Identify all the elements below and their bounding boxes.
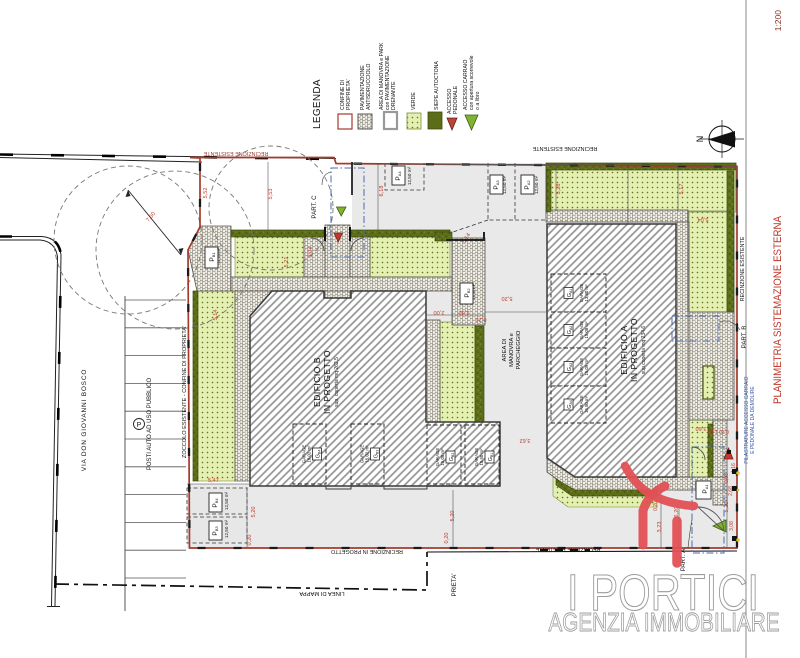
svg-text:5,52: 5,52 [203, 188, 209, 199]
svg-text:12,50 m²: 12,50 m² [407, 166, 412, 185]
svg-text:N: N [695, 136, 705, 143]
svg-text:16,02 m²: 16,02 m² [307, 445, 312, 463]
svg-text:0,20: 0,20 [444, 533, 450, 544]
svg-text:POSTI AUTO AD USO PUBBLICO: POSTI AUTO AD USO PUBBLICO [147, 378, 153, 471]
svg-text:PA4: PA4 [395, 171, 402, 181]
svg-text:RECINZIONE ESISTENTE: RECINZIONE ESISTENTE [740, 236, 746, 301]
svg-text:2,80: 2,80 [459, 309, 470, 315]
svg-text:5,28: 5,28 [556, 184, 562, 195]
svg-text:6,18: 6,18 [379, 186, 385, 197]
svg-text:5,14: 5,14 [213, 310, 219, 321]
svg-text:12,50 m²: 12,50 m² [224, 491, 229, 510]
svg-text:PA2: PA2 [524, 180, 531, 190]
svg-text:DRENANTE: DRENANTE [391, 81, 397, 110]
svg-text:3,04: 3,04 [308, 247, 314, 258]
svg-text:sup.coperta mq 234,6: sup.coperta mq 234,6 [641, 326, 647, 375]
svg-text:RECINZIONE IN PROGETTO: RECINZIONE IN PROGETTO [331, 548, 403, 554]
svg-text:PB1: PB1 [209, 252, 216, 262]
svg-text:16,50 m²: 16,50 m² [584, 395, 589, 413]
svg-text:PLANIMETRIA SISTEMAZIONE ESTER: PLANIMETRIA SISTEMAZIONE ESTERNA [772, 215, 784, 404]
svg-text:5,17: 5,17 [679, 184, 685, 195]
svg-text:PROPRIETA': PROPRIETA' [346, 79, 352, 110]
svg-text:RECINZIONE ESISTENTE: RECINZIONE ESISTENTE [535, 546, 600, 552]
svg-text:PB2: PB2 [464, 288, 471, 298]
svg-text:15,08 m²: 15,08 m² [584, 321, 589, 339]
svg-text:PARCHEGGIO: PARCHEGGIO [516, 330, 522, 369]
svg-text:PART. C: PART. C [311, 195, 318, 219]
svg-text:o a libro: o a libro [475, 91, 481, 110]
svg-text:EDIFICIO B: EDIFICIO B [312, 357, 322, 407]
svg-text:1,10: 1,10 [708, 428, 718, 434]
svg-text:5,53: 5,53 [268, 189, 274, 200]
svg-text:IN PROGETTO: IN PROGETTO [322, 350, 332, 414]
svg-text:IN PROGETTO: IN PROGETTO [629, 318, 639, 382]
svg-text:5,20: 5,20 [724, 502, 730, 513]
svg-text:PEDONALE: PEDONALE [453, 85, 459, 114]
svg-text:VIA DON GIOVANNI BOSCO: VIA DON GIOVANNI BOSCO [81, 369, 88, 471]
svg-text:15,90 m²: 15,90 m² [479, 448, 484, 466]
svg-text:3,62: 3,62 [520, 437, 531, 443]
svg-text:12,50 m²: 12,50 m² [224, 519, 229, 538]
svg-text:5,21: 5,21 [284, 257, 290, 268]
svg-text:PB3: PB3 [212, 526, 219, 536]
svg-text:PA3: PA3 [493, 180, 500, 190]
svg-text:AGENZIA IMMOBILIARE: AGENZIA IMMOBILIARE [549, 609, 780, 637]
svg-text:2,00: 2,00 [434, 309, 445, 315]
svg-text:SIEPE AUTOCTONA: SIEPE AUTOCTONA [434, 61, 440, 110]
svg-text:PB4: PB4 [212, 498, 219, 508]
svg-text:13,80 m²: 13,80 m² [584, 284, 589, 302]
svg-text:12,50 m²: 12,50 m² [471, 283, 476, 299]
svg-text:3,23: 3,23 [657, 522, 663, 533]
svg-text:sup. coperta mq 262,5: sup. coperta mq 262,5 [334, 357, 340, 407]
svg-text:MANOVRA e: MANOVRA e [509, 333, 515, 367]
svg-text:12,50 m²: 12,50 m² [502, 175, 507, 194]
svg-text:5,20: 5,20 [502, 295, 513, 301]
svg-text:3,08: 3,08 [729, 521, 735, 531]
svg-text:0,20: 0,20 [247, 535, 253, 546]
svg-text:15,06 m²: 15,06 m² [440, 448, 445, 466]
svg-text:PRIETA': PRIETA' [451, 573, 458, 596]
svg-text:15,02 m²: 15,02 m² [365, 445, 370, 463]
svg-text:EDIFICIO A: EDIFICIO A [619, 325, 629, 374]
svg-text:RECINZIONE ESISTENTE: RECINZIONE ESISTENTE [532, 145, 597, 151]
svg-text:LEGENDA: LEGENDA [312, 79, 323, 129]
svg-text:15,09 m²: 15,09 m² [584, 358, 589, 376]
svg-text:RECINZIONE ESISTENTE: RECINZIONE ESISTENTE [203, 150, 268, 156]
svg-text:PART. B: PART. B [741, 326, 748, 349]
svg-text:3,60: 3,60 [696, 425, 707, 431]
svg-text:5,20: 5,20 [251, 507, 257, 518]
svg-text:12,50 m²: 12,50 m² [534, 175, 539, 194]
svg-text:0,08: 0,08 [724, 473, 730, 483]
svg-text:VERDE: VERDE [411, 92, 417, 110]
svg-text:P: P [137, 422, 142, 429]
svg-text:5,47: 5,47 [208, 478, 219, 484]
svg-text:AREA DI: AREA DI [502, 338, 508, 361]
svg-text:E PEDONALE DA DEMOLIRE: E PEDONALE DA DEMOLIRE [750, 386, 756, 454]
svg-text:LINEA DI MAPPA: LINEA DI MAPPA [299, 590, 344, 596]
svg-text:0,20: 0,20 [476, 316, 487, 322]
svg-text:PA1: PA1 [702, 484, 709, 494]
svg-text:ANTISDRUCCIOLO: ANTISDRUCCIOLO [366, 64, 372, 110]
svg-text:1:200: 1:200 [773, 10, 783, 32]
svg-text:5,20: 5,20 [450, 511, 456, 522]
svg-text:ZOCCOLO ESISTENTE - CONFINE DI: ZOCCOLO ESISTENTE - CONFINE DI PROPRIETA… [182, 326, 188, 458]
svg-text:0,20: 0,20 [719, 428, 729, 434]
svg-text:12,50 m²: 12,50 m² [216, 247, 221, 263]
svg-text:5,04: 5,04 [698, 216, 709, 222]
